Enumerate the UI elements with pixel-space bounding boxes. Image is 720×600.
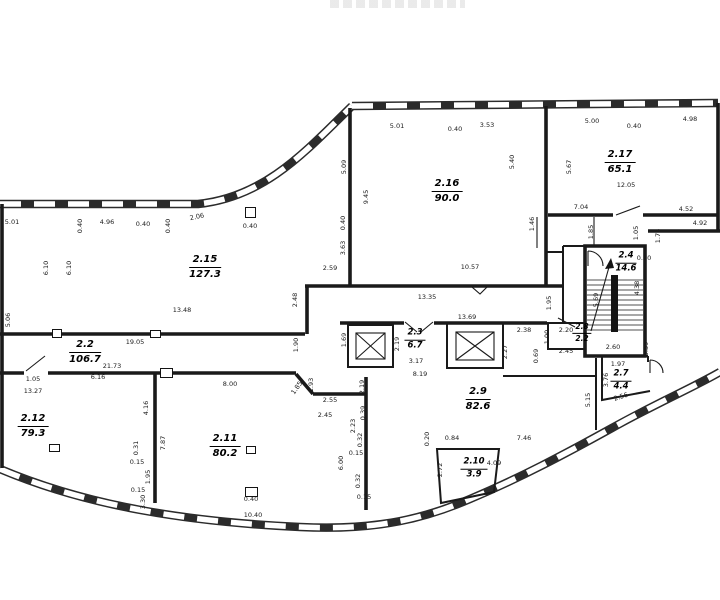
dim-label: 6.10 bbox=[66, 261, 73, 275]
column-marker bbox=[160, 368, 173, 378]
dim-label: 1.95 bbox=[145, 470, 152, 484]
dim-label: 2.48 bbox=[292, 293, 299, 307]
dim-label: 5.06 bbox=[5, 313, 12, 327]
room-label-2.10: 2.103.9 bbox=[461, 458, 488, 481]
dim-label: 6.16 bbox=[91, 374, 105, 381]
dim-label: 2.19 bbox=[394, 337, 401, 351]
dim-label: 4.92 bbox=[693, 220, 707, 227]
dim-label: 3.53 bbox=[480, 122, 494, 129]
dim-label: 0.15 bbox=[130, 459, 144, 466]
dim-label: 12.05 bbox=[617, 182, 636, 189]
dim-label: 1.85 bbox=[290, 380, 304, 396]
dim-label: 1.74 bbox=[655, 229, 662, 243]
dim-label: 8.00 bbox=[223, 381, 237, 388]
dim-label: 1.85 bbox=[588, 225, 595, 239]
dim-label: 0.31 bbox=[133, 441, 140, 455]
dim-label: 7.46 bbox=[517, 435, 531, 442]
room-label-2.16: 2.1690.0 bbox=[432, 178, 463, 204]
dim-label: 2.38 bbox=[517, 327, 531, 334]
dim-label: 0.70 bbox=[637, 255, 651, 262]
dim-label: 10.57 bbox=[461, 264, 480, 271]
dim-label: 0.32 bbox=[357, 433, 364, 447]
dim-label: 2.72 bbox=[437, 463, 444, 477]
dim-label: 3.17 bbox=[409, 358, 423, 365]
room-label-2.4: 2.414.6 bbox=[615, 252, 636, 275]
dim-label: 0.40 bbox=[340, 216, 347, 230]
room-label-2.2: 2.2106.7 bbox=[69, 339, 101, 365]
dim-label: 5.69 bbox=[593, 293, 600, 307]
column-marker bbox=[245, 487, 258, 497]
dim-label: 6.00 bbox=[338, 456, 345, 470]
dim-label: 2.06 bbox=[189, 212, 205, 221]
dim-label: 3.63 bbox=[340, 241, 347, 255]
dim-label: 1.05 bbox=[26, 376, 40, 383]
column-marker bbox=[52, 329, 62, 338]
room-label-2.15: 2.15127.3 bbox=[189, 254, 221, 280]
dim-label: 5.40 bbox=[509, 155, 516, 169]
column-marker bbox=[49, 444, 60, 452]
dim-label: 2.23 bbox=[350, 419, 357, 433]
floor-plan: 5.010.404.960.400.402.060.405.010.403.53… bbox=[0, 0, 720, 600]
dim-label: 1.90 bbox=[293, 338, 300, 352]
dim-label: 4.96 bbox=[100, 219, 114, 226]
dim-label: 0.40 bbox=[243, 223, 257, 230]
dim-label: 0.69 bbox=[533, 349, 540, 363]
dim-label: 0.40 bbox=[77, 219, 84, 233]
dim-label: 0.32 bbox=[355, 474, 362, 488]
room-label-2.8: 2.82.2 bbox=[572, 323, 591, 343]
dim-label: 4.09 bbox=[487, 460, 501, 467]
dim-label: 0.40 bbox=[627, 123, 641, 130]
column-marker bbox=[150, 330, 161, 338]
dim-label: 0.15 bbox=[131, 487, 145, 494]
dim-label: 0.15 bbox=[349, 450, 363, 457]
dim-label: 2.60 bbox=[606, 344, 620, 351]
room-label-2.11: 2.1180.2 bbox=[210, 433, 241, 459]
dim-label: 5.67 bbox=[566, 160, 573, 174]
dim-label: 1.97 bbox=[611, 361, 625, 368]
dim-label: 0.20 bbox=[424, 432, 431, 446]
dim-label: 5.01 bbox=[5, 219, 19, 226]
room-label-2.7: 2.74.4 bbox=[610, 370, 631, 393]
dim-label: 21.73 bbox=[103, 363, 122, 370]
dim-label: 1.46 bbox=[529, 217, 536, 231]
dim-label: 1.93 bbox=[308, 378, 315, 392]
dim-label: 2.45 bbox=[559, 348, 573, 355]
room-label-2.12: 2.1279.3 bbox=[18, 413, 49, 439]
dim-label: 5.00 bbox=[585, 118, 599, 125]
column-marker bbox=[246, 446, 256, 454]
dim-label: 9.45 bbox=[363, 190, 370, 204]
dim-label: 0.39 bbox=[360, 406, 367, 420]
dim-label: 7.04 bbox=[574, 204, 588, 211]
dim-label: 2.20 bbox=[559, 327, 573, 334]
column-marker bbox=[245, 207, 256, 218]
dim-label: 13.48 bbox=[173, 307, 192, 314]
room-label-2.3: 2.36.7 bbox=[404, 329, 425, 352]
dim-label: 2.55 bbox=[323, 397, 337, 404]
dim-label: 4.38 bbox=[634, 281, 641, 295]
dim-label: 3.30 bbox=[140, 495, 147, 509]
dim-label: 4.52 bbox=[679, 206, 693, 213]
dim-label: 2.19 bbox=[359, 380, 366, 394]
dim-label: 1.95 bbox=[546, 296, 553, 310]
dim-label: 0.15 bbox=[357, 494, 371, 501]
dim-label: 4.16 bbox=[143, 401, 150, 415]
dim-label: 0.40 bbox=[136, 221, 150, 228]
dim-label: 0.39 bbox=[643, 342, 650, 356]
dim-label: 10.40 bbox=[244, 512, 263, 519]
dim-label: 7.87 bbox=[160, 436, 167, 450]
labels-layer: 5.010.404.960.400.402.060.405.010.403.53… bbox=[0, 0, 720, 600]
dim-label: 0.84 bbox=[445, 435, 459, 442]
room-label-2.17: 2.1765.1 bbox=[605, 149, 636, 175]
dim-label: 3.76 bbox=[603, 373, 610, 387]
dim-label: 5.01 bbox=[390, 123, 404, 130]
dim-label: 13.35 bbox=[418, 294, 437, 301]
dim-label: 2.27 bbox=[502, 345, 509, 359]
dim-label: 2.45 bbox=[318, 412, 332, 419]
dim-label: 13.27 bbox=[24, 388, 43, 395]
dim-label: 2.56 bbox=[613, 392, 629, 403]
dim-label: 6.10 bbox=[43, 261, 50, 275]
dim-label: 4.98 bbox=[683, 116, 697, 123]
dim-label: 1.05 bbox=[633, 226, 640, 240]
dim-label: 5.15 bbox=[585, 393, 592, 407]
dim-label: 0.40 bbox=[165, 219, 172, 233]
dim-label: 8.19 bbox=[413, 371, 427, 378]
dim-label: 0.40 bbox=[448, 126, 462, 133]
room-label-2.9: 2.982.6 bbox=[466, 386, 491, 412]
dim-label: 1.69 bbox=[341, 333, 348, 347]
dim-label: 19.05 bbox=[126, 339, 145, 346]
dim-label: 2.59 bbox=[323, 265, 337, 272]
dim-label: 1.00 bbox=[544, 330, 551, 344]
dim-label: 13.69 bbox=[458, 314, 477, 321]
dim-label: 5.09 bbox=[341, 160, 348, 174]
